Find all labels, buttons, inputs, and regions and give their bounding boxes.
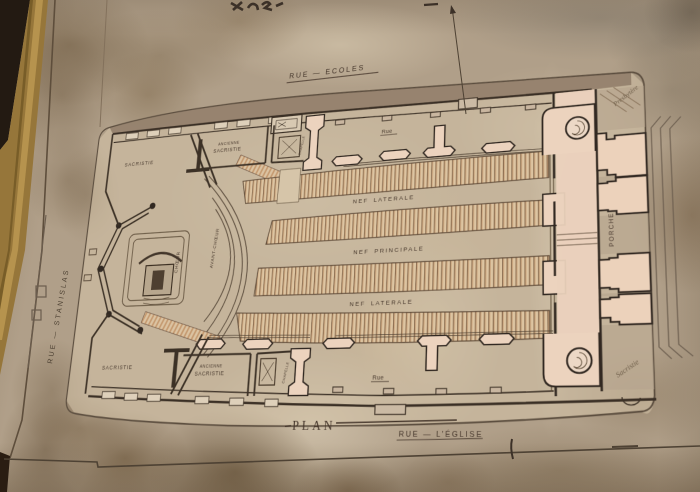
- svg-text:RUE — STANISLAS: RUE — STANISLAS: [47, 268, 71, 364]
